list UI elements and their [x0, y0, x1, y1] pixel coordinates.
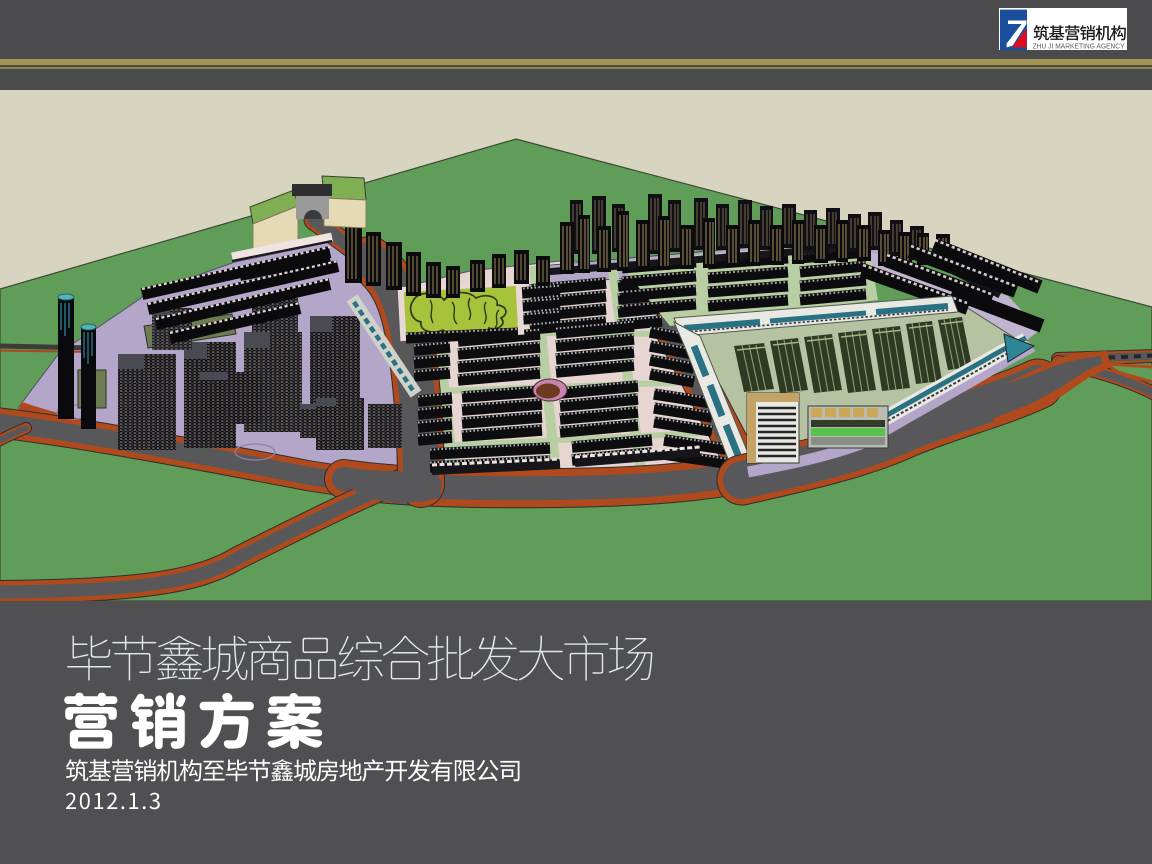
svg-text:ZHU JI MARKETING AGENCY: ZHU JI MARKETING AGENCY [1033, 42, 1125, 51]
